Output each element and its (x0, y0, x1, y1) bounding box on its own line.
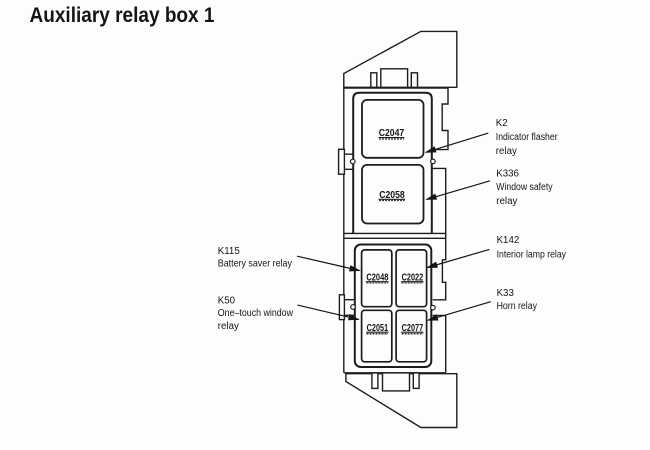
svg-text:K50: K50 (218, 296, 236, 307)
svg-text:Auxiliary relay box 1: Auxiliary relay box 1 (30, 4, 215, 27)
svg-text:relay: relay (496, 146, 517, 157)
svg-text:K115: K115 (218, 246, 240, 257)
svg-text:Window safety: Window safety (496, 182, 552, 193)
svg-text:K336: K336 (496, 168, 519, 179)
svg-text:Battery saver relay: Battery saver relay (218, 259, 292, 270)
svg-text:Indicator flasher: Indicator flasher (496, 132, 558, 143)
svg-text:K2: K2 (496, 118, 508, 129)
svg-text:K33: K33 (497, 288, 514, 299)
svg-text:One–touch window: One–touch window (218, 308, 294, 319)
svg-text:relay: relay (218, 321, 239, 332)
svg-text:relay: relay (496, 196, 517, 207)
svg-text:Interior lamp relay: Interior lamp relay (497, 249, 567, 260)
svg-text:Horn relay: Horn relay (497, 301, 538, 312)
svg-text:K142: K142 (497, 235, 520, 246)
